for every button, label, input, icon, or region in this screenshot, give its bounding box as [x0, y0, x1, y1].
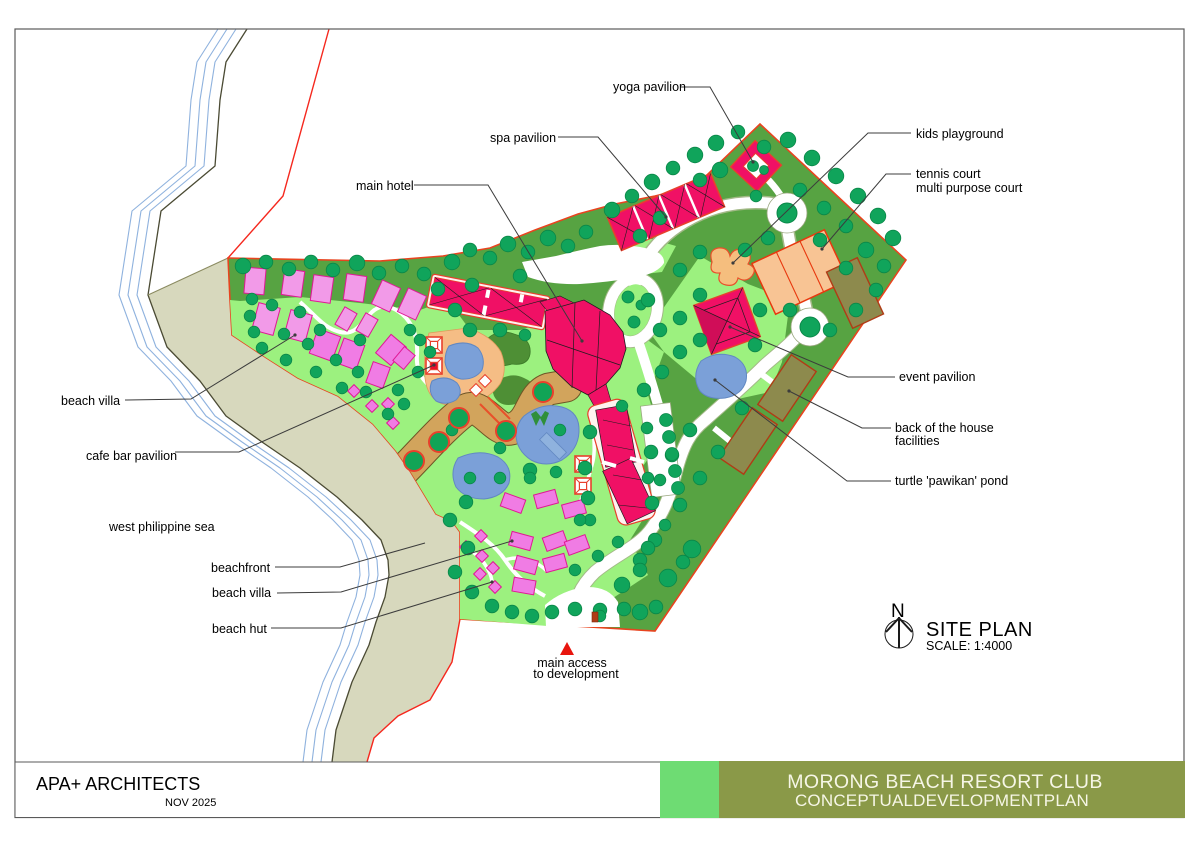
svg-text:facilities: facilities	[895, 434, 939, 448]
svg-text:multi purpose court: multi purpose court	[916, 181, 1023, 195]
svg-text:beach hut: beach hut	[212, 622, 267, 636]
svg-text:SITE PLAN: SITE PLAN	[926, 619, 1033, 641]
svg-text:yoga pavilion: yoga pavilion	[613, 80, 686, 94]
svg-text:main hotel: main hotel	[356, 179, 414, 193]
svg-text:west philippine sea: west philippine sea	[108, 520, 215, 534]
svg-text:to development: to development	[533, 667, 619, 681]
svg-text:NOV 2025: NOV 2025	[165, 797, 216, 809]
svg-text:CONCEPTUALDEVELOPMENTPLAN: CONCEPTUALDEVELOPMENTPLAN	[795, 791, 1089, 810]
svg-text:MORONG BEACH RESORT CLUB: MORONG BEACH RESORT CLUB	[787, 771, 1103, 793]
svg-text:SCALE: 1:4000: SCALE: 1:4000	[926, 639, 1012, 653]
svg-text:APA+ ARCHITECTS: APA+ ARCHITECTS	[36, 774, 200, 794]
svg-text:N: N	[891, 601, 905, 622]
svg-text:beach villa: beach villa	[61, 394, 120, 408]
svg-text:turtle 'pawikan' pond: turtle 'pawikan' pond	[895, 474, 1008, 488]
svg-text:beachfront: beachfront	[211, 561, 271, 575]
svg-text:tennis court: tennis court	[916, 167, 981, 181]
svg-text:event pavilion: event pavilion	[899, 370, 975, 384]
svg-text:kids playground: kids playground	[916, 127, 1004, 141]
svg-text:beach villa: beach villa	[212, 586, 271, 600]
svg-text:back of the house: back of the house	[895, 421, 994, 435]
svg-text:cafe bar pavilion: cafe bar pavilion	[86, 449, 177, 463]
svg-text:spa pavilion: spa pavilion	[490, 131, 556, 145]
